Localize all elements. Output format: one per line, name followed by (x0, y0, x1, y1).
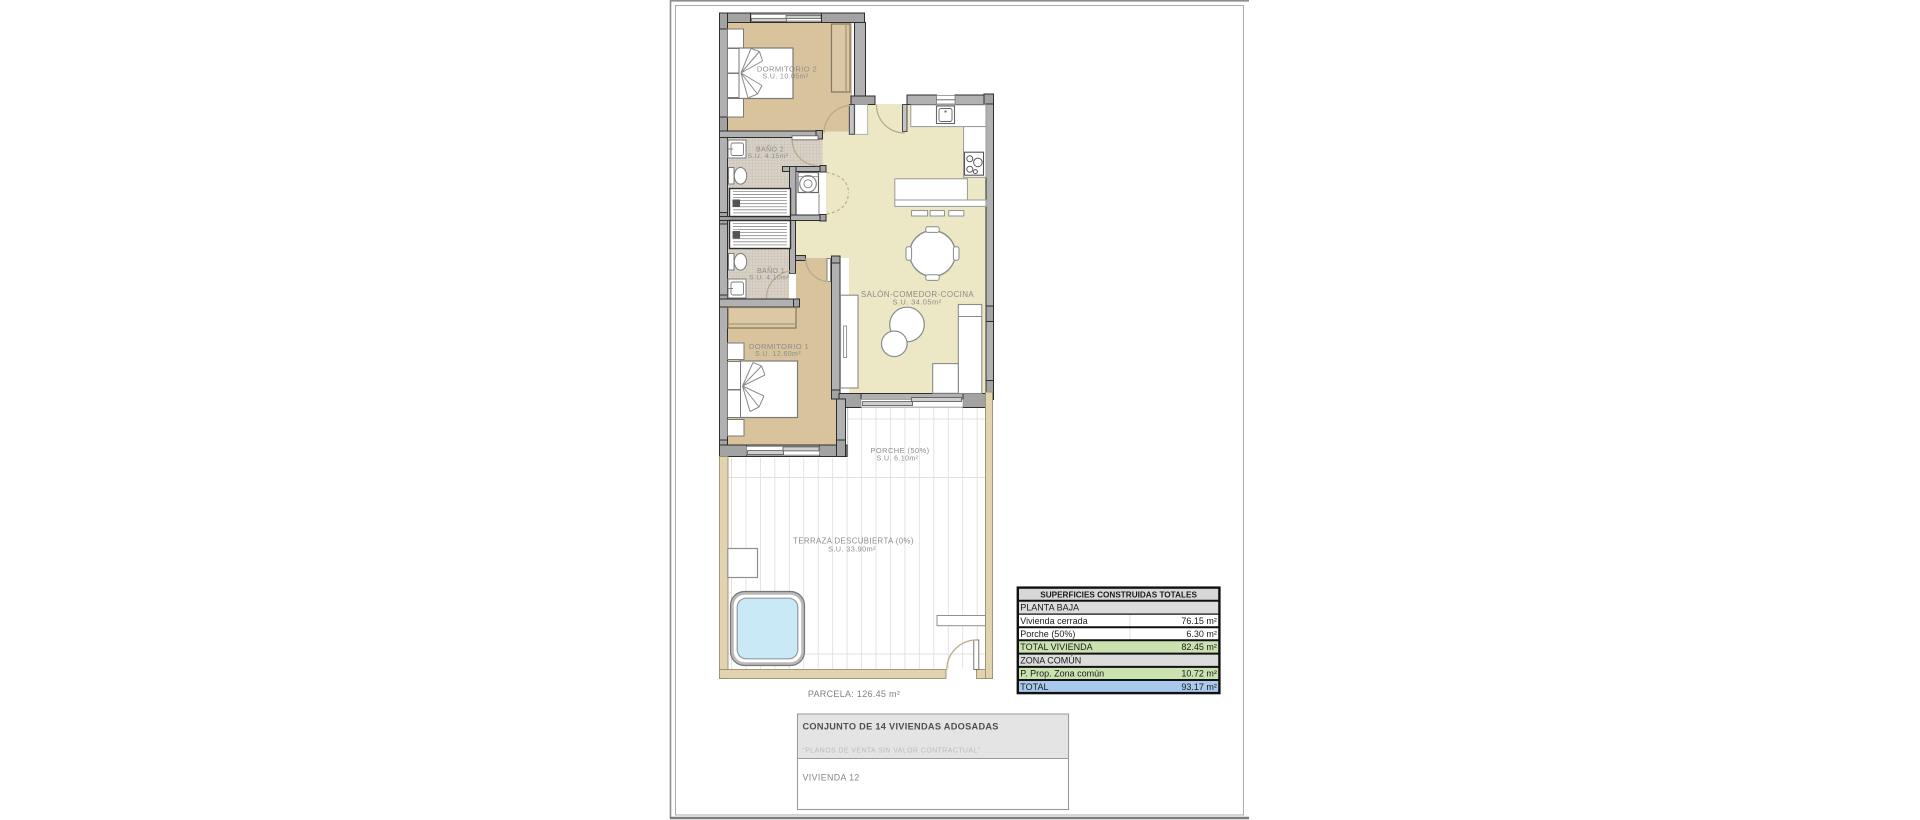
svg-text:Vivienda cerrada: Vivienda cerrada (1020, 616, 1087, 626)
svg-text:S.U. 12.60m²: S.U. 12.60m² (755, 351, 801, 358)
svg-text:SUPERFICIES CONSTRUIDAS TOTALE: SUPERFICIES CONSTRUIDAS TOTALES (1040, 590, 1197, 599)
svg-text:76.15 m²: 76.15 m² (1181, 616, 1217, 626)
svg-text:S.U. 10.05m²: S.U. 10.05m² (762, 74, 808, 81)
svg-text:S.U. 4.15m²: S.U. 4.15m² (748, 153, 789, 160)
svg-text:93.17 m²: 93.17 m² (1181, 682, 1217, 692)
svg-text:6.30 m²: 6.30 m² (1186, 629, 1217, 639)
svg-text:S.U. 33.90m²: S.U. 33.90m² (828, 545, 876, 554)
svg-text:TOTAL: TOTAL (1020, 682, 1048, 692)
svg-text:DORMITORIO 1: DORMITORIO 1 (749, 342, 809, 351)
svg-text:PORCHE (50%): PORCHE (50%) (871, 446, 930, 455)
svg-text:82.45 m²: 82.45 m² (1181, 642, 1217, 652)
svg-text:PARCELA: 126.45 m²: PARCELA: 126.45 m² (808, 689, 900, 699)
svg-text:PLANTA BAJA: PLANTA BAJA (1020, 603, 1079, 613)
svg-text:P. Prop. Zona común: P. Prop. Zona común (1020, 669, 1104, 679)
svg-text:ZONA COMÚN: ZONA COMÚN (1020, 656, 1081, 666)
svg-text:VIVIENDA 12: VIVIENDA 12 (803, 773, 860, 783)
svg-text:S.U. 34.05m²: S.U. 34.05m² (893, 298, 942, 307)
svg-text:“PLANOS DE VENTA SIN VALOR CON: “PLANOS DE VENTA SIN VALOR CONTRACTUAL” (803, 748, 981, 755)
svg-text:CONJUNTO DE 14 VIVIENDAS ADOSA: CONJUNTO DE 14 VIVIENDAS ADOSADAS (803, 722, 999, 732)
svg-text:DORMITORIO 2: DORMITORIO 2 (757, 65, 817, 74)
svg-text:TOTAL VIVIENDA: TOTAL VIVIENDA (1020, 642, 1092, 652)
svg-text:Porche (50%): Porche (50%) (1020, 629, 1075, 639)
svg-text:S.U. 6.10m²: S.U. 6.10m² (877, 456, 919, 463)
svg-text:S.U. 4.10m²: S.U. 4.10m² (749, 275, 790, 282)
svg-text:10.72 m²: 10.72 m² (1181, 669, 1217, 679)
